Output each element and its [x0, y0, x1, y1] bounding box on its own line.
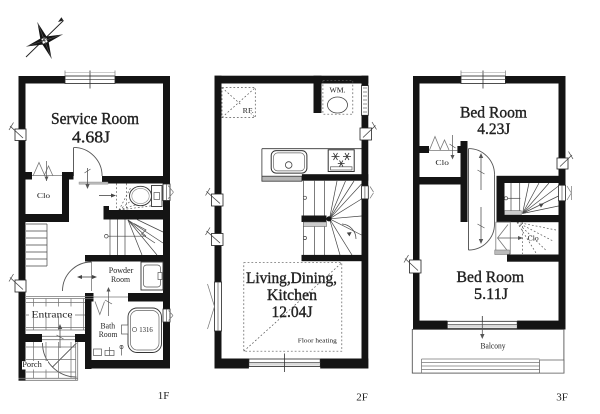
svg-text:Room: Room: [99, 329, 118, 339]
svg-text:Kitchen: Kitchen: [267, 287, 317, 304]
svg-text:Bed Room: Bed Room: [457, 269, 525, 286]
svg-text:12.04J: 12.04J: [272, 304, 313, 321]
svg-text:Bed Room: Bed Room: [460, 105, 528, 122]
svg-text:3F: 3F: [556, 392, 568, 404]
svg-text:Powder: Powder: [109, 266, 134, 275]
svg-text:Porch: Porch: [22, 360, 42, 369]
svg-text:Clo: Clo: [37, 191, 51, 200]
svg-text:RF.: RF.: [243, 106, 254, 115]
svg-text:5.11J: 5.11J: [474, 286, 508, 303]
svg-text:Clo: Clo: [528, 233, 539, 242]
svg-text:Entrance: Entrance: [32, 311, 73, 321]
svg-text:1316: 1316: [139, 326, 153, 334]
svg-text:2F: 2F: [356, 392, 368, 404]
svg-text:4.68J: 4.68J: [72, 128, 111, 147]
svg-text:Service Room: Service Room: [51, 109, 139, 128]
svg-text:Room: Room: [111, 275, 131, 284]
svg-text:4.23J: 4.23J: [477, 121, 510, 138]
svg-text:1F: 1F: [158, 390, 170, 402]
svg-text:Floor heating: Floor heating: [298, 339, 337, 345]
svg-text:Balcony: Balcony: [481, 341, 506, 350]
svg-text:Clo: Clo: [435, 158, 449, 167]
svg-text:WM.: WM.: [330, 86, 346, 95]
svg-text:Living,Dining,: Living,Dining,: [246, 270, 337, 287]
